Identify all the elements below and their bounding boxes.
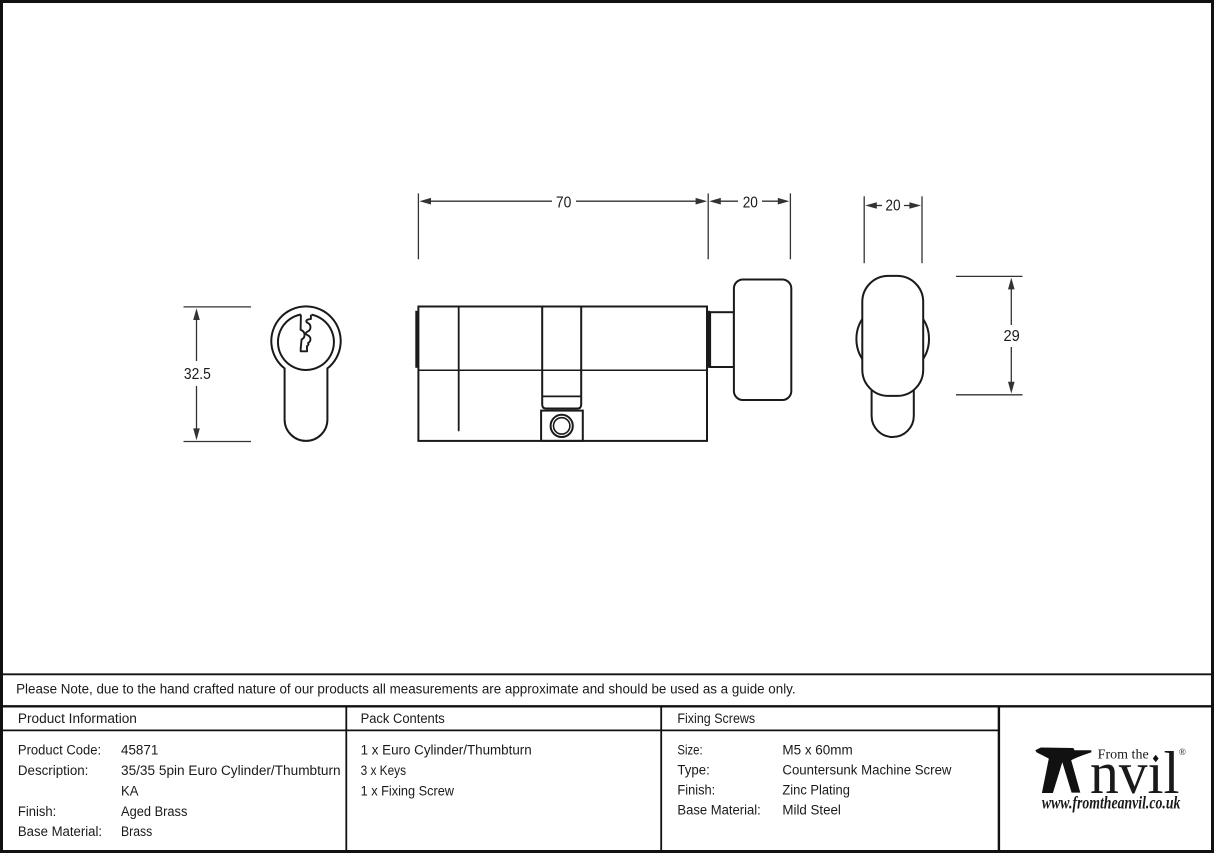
svg-text:1 x Euro Cylinder/Thumbturn: 1 x Euro Cylinder/Thumbturn [361, 743, 532, 759]
svg-text:Base Material:: Base Material: [677, 803, 760, 819]
svg-text:20: 20 [885, 198, 901, 215]
svg-text:29: 29 [1004, 328, 1020, 345]
svg-text:Finish:: Finish: [677, 783, 715, 799]
svg-text:35/35 5pin Euro Cylinder/Thumb: 35/35 5pin Euro Cylinder/Thumbturn [121, 763, 341, 779]
svg-text:Fixing Screws: Fixing Screws [677, 711, 755, 727]
svg-text:Finish:: Finish: [18, 804, 56, 820]
svg-text:Product Code:: Product Code: [18, 743, 101, 759]
svg-text:Aged Brass: Aged Brass [121, 804, 187, 820]
svg-text:1 x Fixing Screw: 1 x Fixing Screw [361, 783, 455, 799]
svg-text:M5 x 60mm: M5 x 60mm [782, 742, 852, 758]
svg-text:45871: 45871 [121, 743, 158, 759]
svg-text:Brass: Brass [121, 824, 152, 840]
svg-text:20: 20 [743, 195, 759, 212]
svg-text:Type:: Type: [677, 762, 709, 778]
svg-text:Please Note, due to the hand c: Please Note, due to the hand crafted nat… [16, 682, 796, 698]
svg-text:KA: KA [121, 783, 139, 799]
svg-text:www.fromtheanvil.co.uk: www.fromtheanvil.co.uk [1042, 792, 1181, 812]
svg-text:Countersunk Machine Screw: Countersunk Machine Screw [782, 762, 952, 778]
svg-text:32.5: 32.5 [184, 366, 211, 383]
svg-text:Pack Contents: Pack Contents [361, 711, 445, 727]
svg-text:70: 70 [556, 195, 572, 212]
svg-text:Description:: Description: [18, 763, 89, 779]
svg-text:®: ® [1179, 747, 1186, 758]
svg-text:Base Material:: Base Material: [18, 824, 102, 840]
svg-text:Zinc Plating: Zinc Plating [782, 783, 850, 799]
svg-text:Mild Steel: Mild Steel [782, 803, 841, 819]
svg-text:Product Information: Product Information [18, 711, 137, 727]
svg-text:3 x Keys: 3 x Keys [361, 763, 406, 779]
svg-text:Size:: Size: [677, 742, 702, 758]
